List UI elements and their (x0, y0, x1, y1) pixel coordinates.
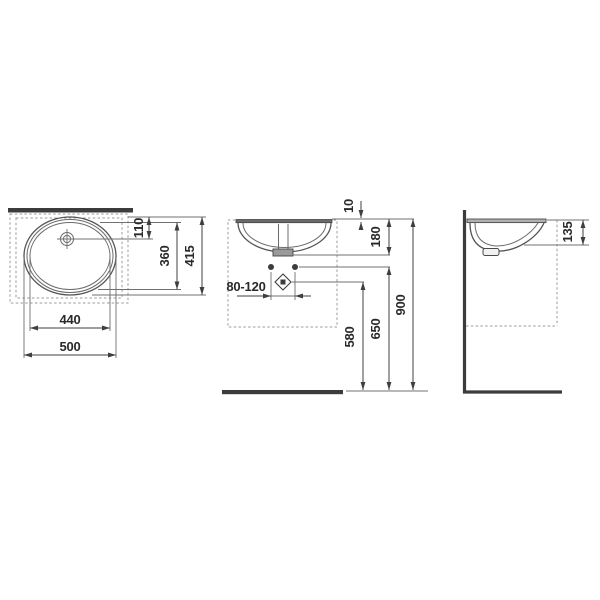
front-counter-dashed-outline (228, 220, 337, 327)
waste-outlet-center (281, 280, 286, 285)
fixing-hole-left (268, 264, 274, 270)
dim-label-110: 110 (131, 218, 146, 238)
plan-cutout-dashed-outline (16, 218, 122, 298)
drawing-canvas: 110 360 415 440 500 (0, 0, 600, 600)
technical-drawing-svg: 110 360 415 440 500 (0, 0, 600, 600)
front-bowl-inner-curve (243, 223, 326, 247)
side-bowl-outer-curve (470, 223, 544, 251)
dim-label-580: 580 (342, 326, 357, 347)
dim-label-80-120: 80-120 (226, 279, 265, 294)
basin-mid-rim-oval (27, 220, 113, 293)
front-basin-rim (236, 220, 332, 223)
dim-label-135: 135 (560, 221, 575, 242)
front-floor-bar (222, 390, 343, 394)
front-view: 10 180 80-120 580 650 900 (222, 199, 428, 394)
basin-inner-bowl-oval (30, 223, 110, 290)
dim-label-500: 500 (59, 339, 80, 354)
plan-wall-bar (8, 208, 133, 213)
side-bowl-inner-curve (475, 223, 538, 246)
dim-label-900: 900 (393, 294, 408, 315)
basin-outer-rim-oval (24, 217, 116, 295)
plan-view: 110 360 415 440 500 (8, 208, 206, 358)
side-view: 135 (463, 210, 589, 394)
side-basin-rim (467, 219, 546, 223)
fixing-hole-right (292, 264, 298, 270)
dim-label-180: 180 (368, 226, 383, 247)
dim-label-415: 415 (182, 245, 197, 266)
side-drain-stub (483, 249, 499, 256)
drain-flange (273, 249, 293, 256)
dim-label-440: 440 (59, 312, 80, 327)
dim-label-10: 10 (341, 199, 356, 213)
dim-label-650: 650 (368, 318, 383, 339)
dim-label-360: 360 (157, 245, 172, 266)
